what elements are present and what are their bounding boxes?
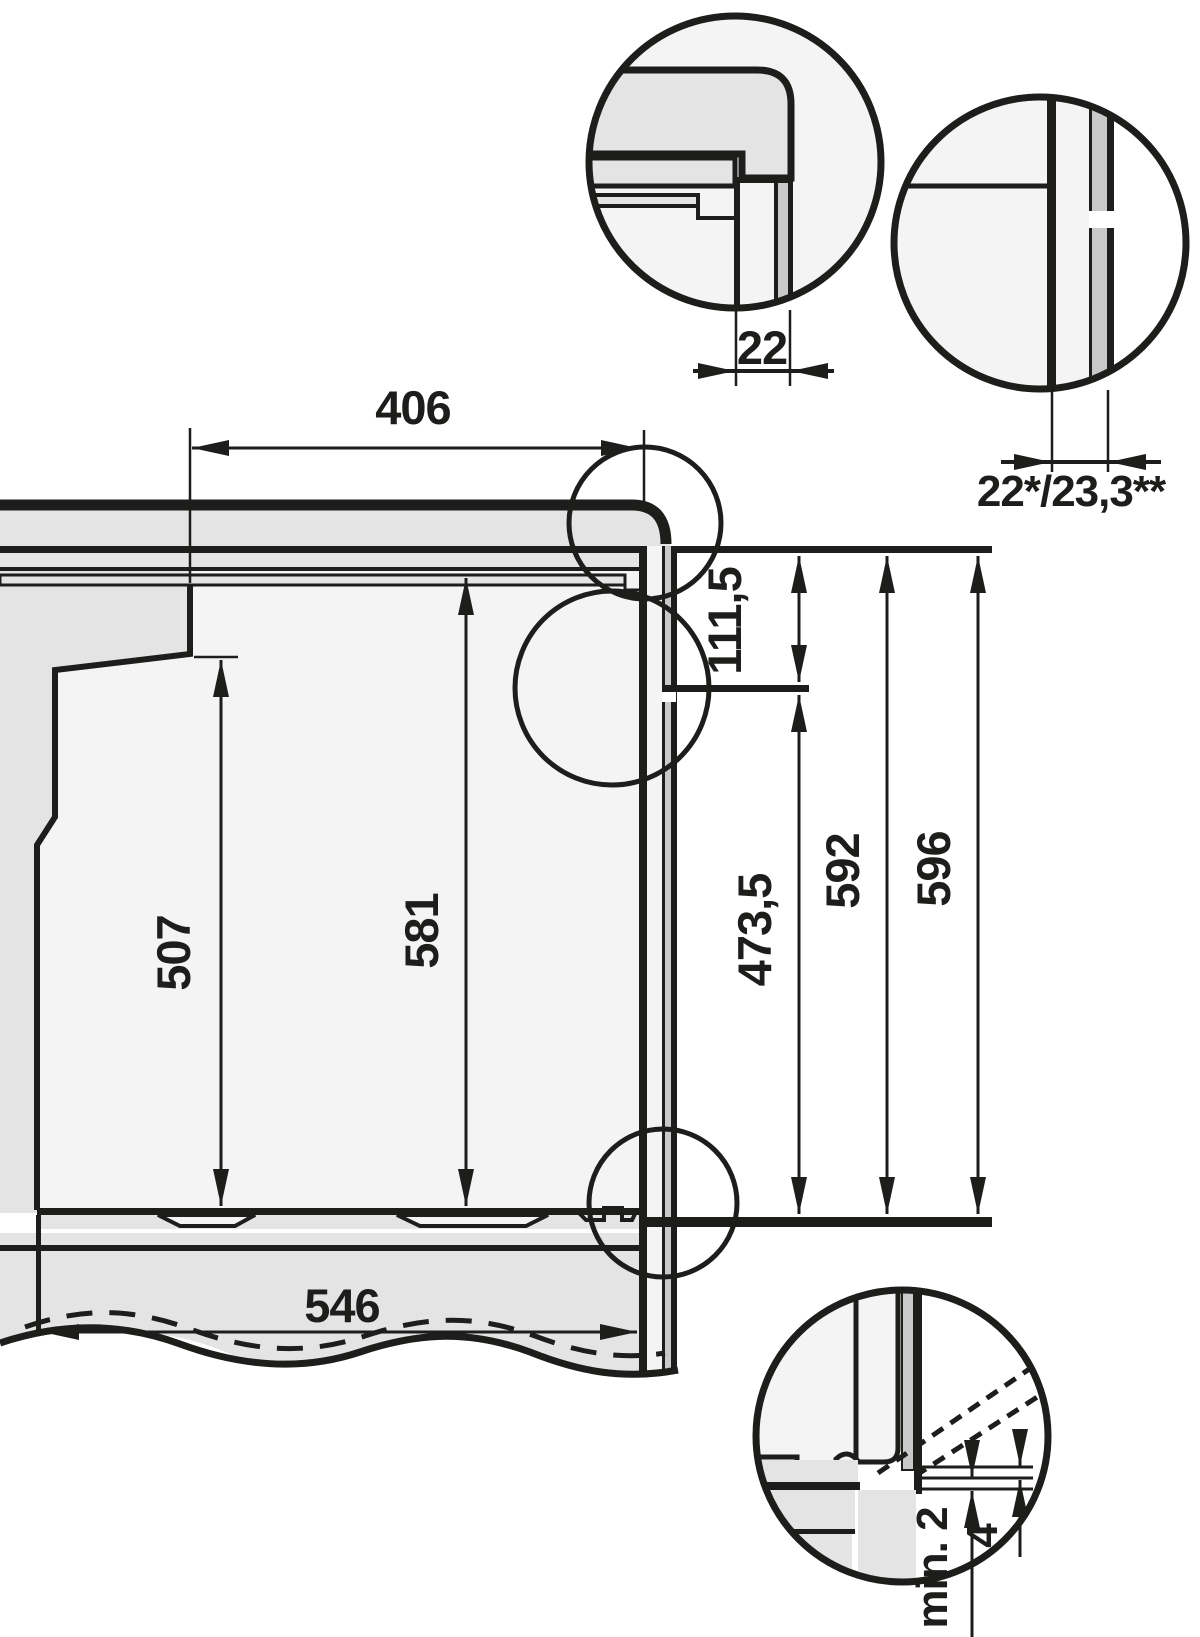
dimension-22-23-3: 22*/23,3**	[977, 390, 1167, 516]
top-reference-line	[0, 546, 992, 553]
detail-view-front-gap: 22*/23,3**	[892, 90, 1198, 516]
detail-view-bottom-gap: 4 min. 2	[748, 1282, 1059, 1637]
dimension-473-5: 473,5	[728, 695, 799, 1214]
detail-door-top	[734, 177, 793, 315]
dimension-111-5: 111,5	[698, 556, 799, 682]
floor-emboss-right	[397, 1215, 548, 1226]
detail-door-inner-panel	[902, 1282, 914, 1470]
bottom-reference-line	[647, 1217, 992, 1227]
detail-view-worktop-corner: 22	[570, 16, 881, 386]
dim-label-596: 596	[907, 831, 960, 906]
control-panel-bottom-line	[662, 685, 809, 692]
dim-label-22-23-3: 22*/23,3**	[977, 467, 1167, 516]
cavity-top-liner	[0, 575, 625, 585]
detail-upper-panel	[570, 158, 735, 186]
diagram-canvas: 406 507 581 546 111,5 473,5 592 596	[0, 0, 1200, 1637]
detail-vent-gap	[1089, 211, 1116, 228]
floor-emboss-left	[158, 1215, 255, 1226]
dim-label-507: 507	[147, 915, 200, 990]
detail-liner	[570, 195, 698, 206]
installation-diagram: 406 507 581 546 111,5 473,5 592 596	[0, 0, 1200, 1637]
dim-label-406: 406	[375, 381, 450, 434]
upper-panel-band-line	[0, 567, 640, 571]
dimension-592: 592	[816, 556, 887, 1214]
upper-panel-band	[0, 553, 640, 569]
dim-label-546: 546	[304, 1279, 379, 1332]
dim-label-592: 592	[816, 833, 869, 908]
detail-door-glass	[856, 1282, 898, 1462]
detail-front-face-line	[1047, 90, 1056, 400]
dim-label-min-2: min. 2	[908, 1507, 957, 1628]
dimension-596: 596	[907, 556, 978, 1214]
dimension-22: 22	[693, 310, 834, 386]
floor-band	[37, 1215, 640, 1229]
vent-slot-gap	[662, 692, 676, 702]
dim-label-4: 4	[958, 1523, 1007, 1548]
bottom-band-line	[0, 1245, 640, 1251]
dim-label-473-5: 473,5	[728, 874, 781, 987]
dim-label-22: 22	[737, 321, 787, 374]
bottom-band	[0, 1233, 640, 1245]
dim-label-581: 581	[395, 893, 448, 968]
detail-cabinet-interior	[748, 1282, 860, 1460]
cavity-floor-line	[37, 1208, 640, 1215]
detail-door-back-edge	[914, 1282, 922, 1494]
